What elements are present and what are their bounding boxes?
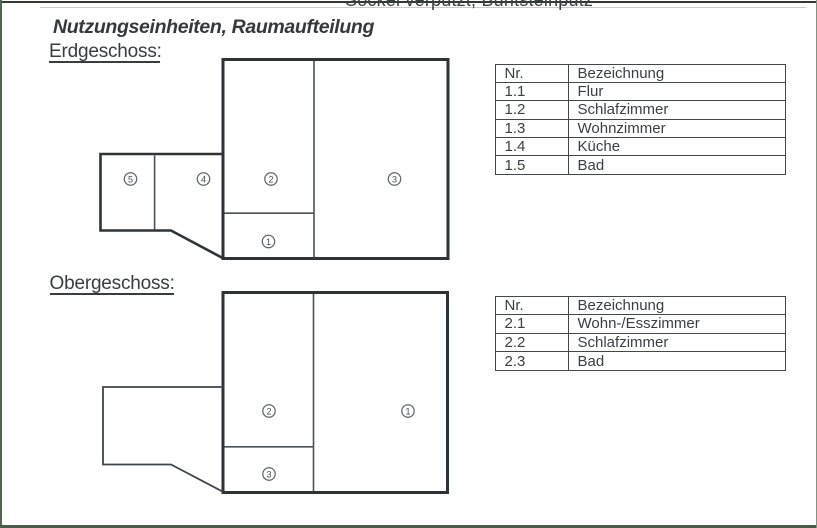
- svg-text:2: 2: [268, 174, 273, 184]
- svg-text:2: 2: [266, 406, 271, 416]
- svg-text:3: 3: [392, 174, 397, 184]
- svg-text:1: 1: [266, 237, 271, 247]
- svg-text:1: 1: [405, 406, 410, 416]
- svg-text:3: 3: [266, 469, 271, 479]
- svg-text:4: 4: [201, 174, 206, 184]
- svg-text:5: 5: [128, 174, 133, 184]
